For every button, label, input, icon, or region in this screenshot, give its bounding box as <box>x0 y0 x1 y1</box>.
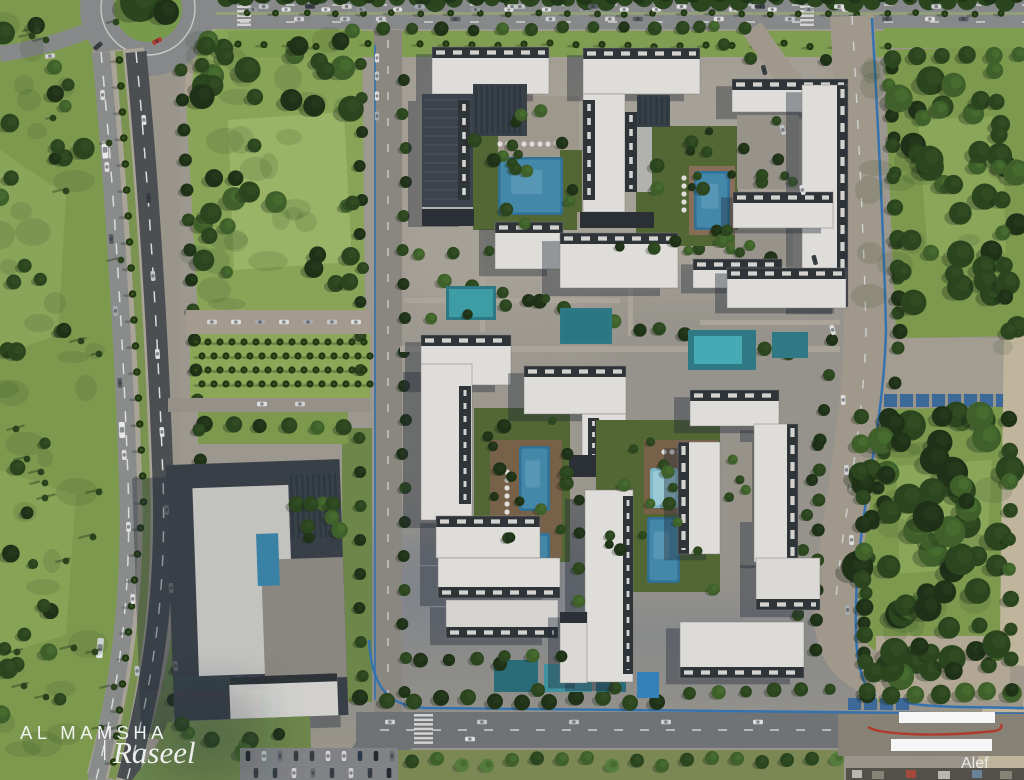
svg-text:Alef: Alef <box>961 755 989 772</box>
svg-text:Raseel: Raseel <box>112 735 196 770</box>
